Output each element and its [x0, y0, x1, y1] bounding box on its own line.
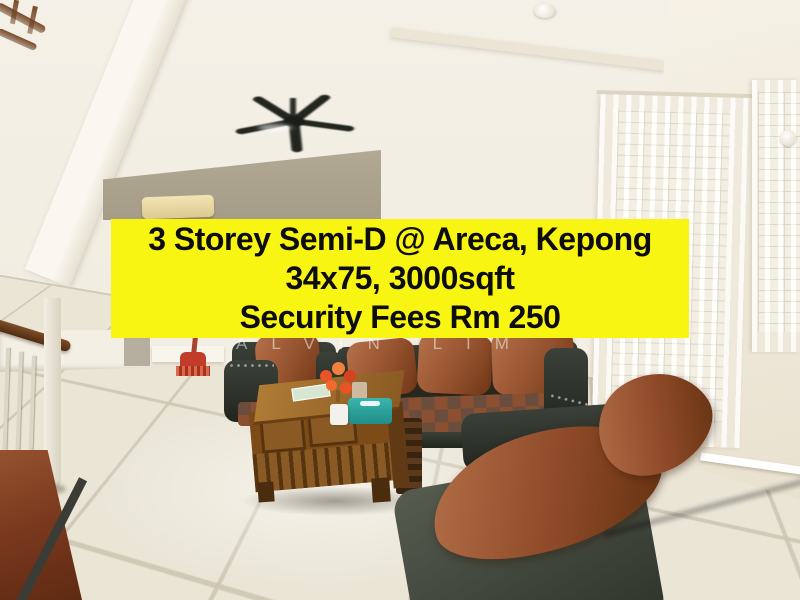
fan-light-glow: [258, 124, 292, 131]
tissue-box: [348, 398, 392, 424]
broom: [172, 334, 216, 386]
flower-stem: [336, 390, 340, 402]
info-banner: 3 Storey Semi-D @ Areca, Kepong 34x75, 3…: [111, 219, 689, 338]
ceiling-fan: [232, 106, 360, 142]
flower-petal: [344, 370, 356, 382]
table-leg: [371, 477, 391, 502]
window-sheer-curtain: [752, 80, 800, 352]
wall-light: [780, 130, 796, 146]
mug: [330, 404, 348, 425]
table-leg: [257, 481, 274, 502]
side-window: [752, 80, 800, 352]
banner-line-3: Security Fees Rm 250: [240, 298, 561, 337]
banner-line-2: 34x75, 3000sqft: [285, 259, 514, 298]
listing-photo: ALVIN LIM 3 Storey Semi-D @ Areca, Kepon…: [0, 0, 800, 600]
downlight-icon: [534, 4, 556, 18]
doorway: [124, 334, 150, 366]
flower-petal: [332, 362, 345, 375]
tissue-slot: [360, 401, 380, 406]
air-conditioner: [142, 195, 215, 219]
banner-line-1: 3 Storey Semi-D @ Areca, Kepong: [148, 220, 652, 259]
upper-railing: [0, 2, 47, 34]
broom-bristles: [176, 366, 210, 376]
flower-petal: [340, 382, 352, 394]
